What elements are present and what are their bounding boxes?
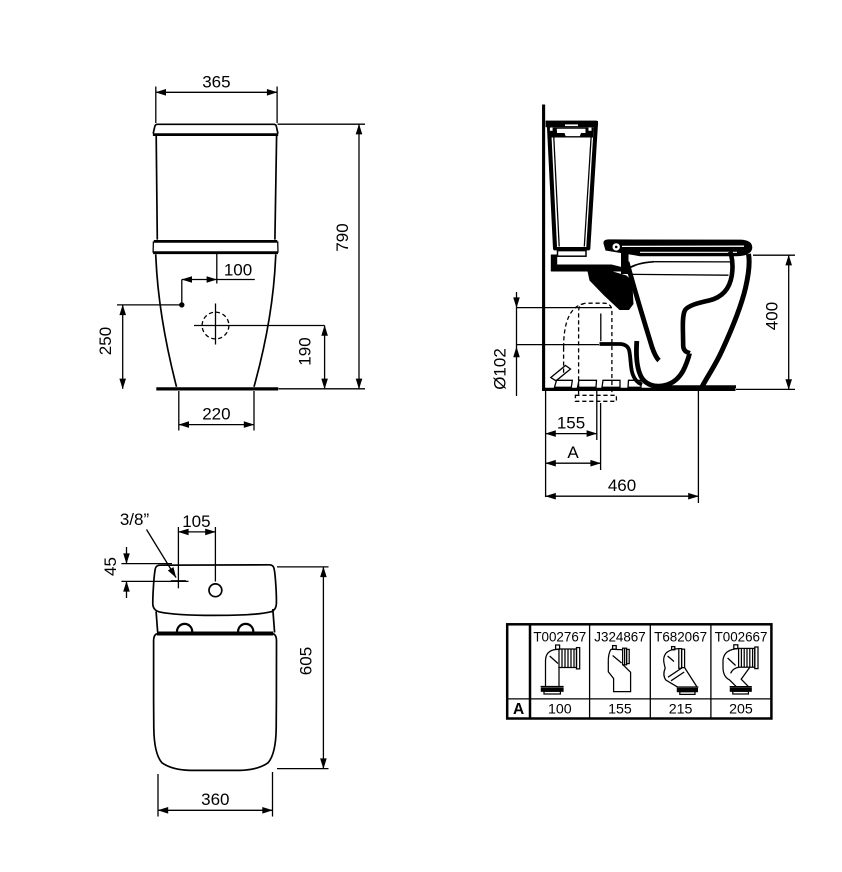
svg-text:220: 220 (202, 405, 230, 424)
svg-text:105: 105 (182, 512, 210, 531)
svg-text:J324867: J324867 (594, 630, 645, 645)
svg-text:365: 365 (202, 73, 230, 92)
svg-text:155: 155 (608, 702, 632, 718)
svg-text:250: 250 (96, 327, 115, 355)
svg-text:605: 605 (297, 647, 316, 675)
svg-text:400: 400 (763, 302, 782, 330)
svg-text:A: A (567, 443, 579, 462)
svg-text:T002767: T002767 (533, 630, 586, 645)
svg-text:190: 190 (296, 337, 315, 365)
svg-text:100: 100 (224, 261, 252, 280)
svg-text:360: 360 (201, 790, 229, 809)
svg-text:215: 215 (669, 702, 693, 718)
svg-text:T002667: T002667 (715, 630, 768, 645)
svg-text:Ø102: Ø102 (491, 348, 510, 390)
svg-text:155: 155 (557, 414, 585, 433)
svg-text:460: 460 (608, 476, 636, 495)
svg-text:100: 100 (548, 702, 572, 718)
svg-text:205: 205 (729, 702, 753, 718)
svg-text:A: A (513, 701, 524, 718)
svg-text:3/8”: 3/8” (120, 510, 150, 529)
svg-text:45: 45 (101, 557, 120, 576)
svg-text:790: 790 (333, 223, 352, 251)
svg-text:T682067: T682067 (654, 630, 707, 645)
